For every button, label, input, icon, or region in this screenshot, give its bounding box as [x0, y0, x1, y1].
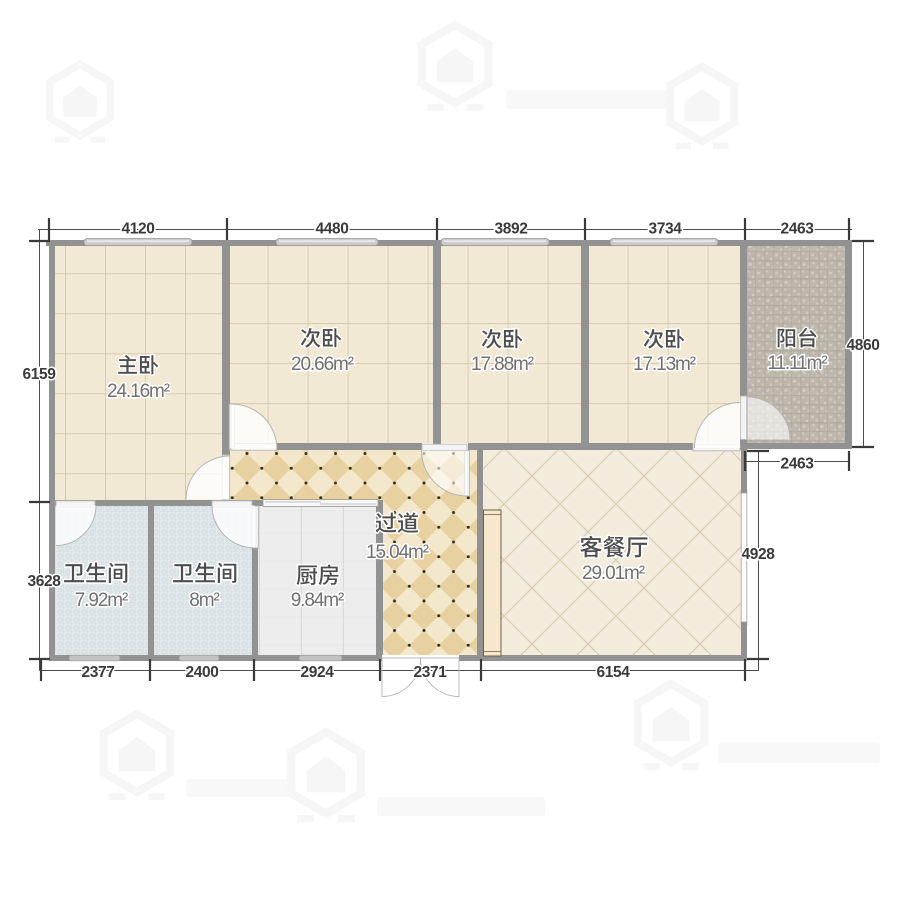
- svg-text:3892: 3892: [495, 221, 528, 238]
- svg-text:4860: 4860: [847, 337, 880, 354]
- svg-text:2377: 2377: [82, 664, 115, 681]
- svg-text:2463: 2463: [781, 456, 815, 473]
- svg-text:11.11m²: 11.11m²: [767, 353, 827, 374]
- svg-text:9.84m²: 9.84m²: [291, 590, 344, 611]
- svg-text:17.88m²: 17.88m²: [471, 354, 534, 375]
- svg-text:29.01m²: 29.01m²: [582, 563, 645, 584]
- svg-text:17.13m²: 17.13m²: [633, 354, 696, 375]
- svg-text:20.66m²: 20.66m²: [291, 354, 354, 375]
- svg-text:2371: 2371: [414, 664, 448, 681]
- svg-text:2463: 2463: [781, 221, 815, 238]
- svg-text:2924: 2924: [301, 664, 335, 681]
- svg-text:6159: 6159: [23, 366, 57, 383]
- svg-text:4480: 4480: [316, 221, 349, 238]
- svg-text:2400: 2400: [186, 664, 219, 681]
- svg-text:24.16m²: 24.16m²: [107, 381, 170, 402]
- svg-text:7.92m²: 7.92m²: [75, 590, 128, 611]
- svg-text:6154: 6154: [597, 664, 631, 681]
- svg-text:4928: 4928: [742, 546, 776, 563]
- svg-text:4120: 4120: [122, 221, 155, 238]
- svg-text:3628: 3628: [28, 573, 62, 590]
- svg-text:15.04m²: 15.04m²: [366, 542, 429, 563]
- svg-text:8m²: 8m²: [189, 590, 219, 611]
- svg-text:3734: 3734: [649, 221, 683, 238]
